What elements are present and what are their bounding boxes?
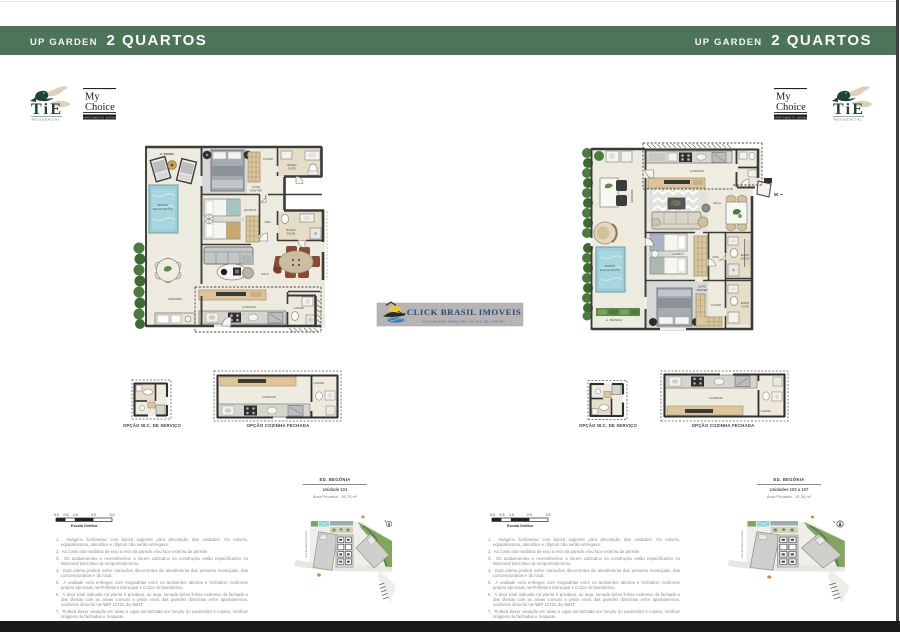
svg-text:PRAINHA (M² ÚTIL): PRAINHA (M² ÚTIL): [153, 208, 174, 211]
svg-text:SUA MELHOR IMOBILIÁRIA NO RIO: SUA MELHOR IMOBILIÁRIA NO RIO DE JANEIRO: [423, 320, 506, 324]
svg-text:PISCINA: PISCINA: [605, 264, 616, 268]
svg-text:MASTER: MASTER: [697, 288, 708, 292]
svg-text:SALA: SALA: [261, 272, 269, 276]
svg-text:CLOSET: CLOSET: [711, 303, 722, 307]
svg-text:A. PEDRA: A. PEDRA: [160, 152, 175, 156]
svg-text:LAVAND.: LAVAND.: [761, 409, 772, 413]
svg-text:CLOSET: CLOSET: [263, 157, 274, 161]
svg-text:COZINHA: COZINHA: [262, 395, 276, 399]
svg-text:BANHO: BANHO: [286, 228, 295, 232]
svg-text:BANHO: BANHO: [287, 163, 296, 167]
svg-text:CIRC.: CIRC.: [264, 220, 271, 224]
svg-text:MASTER: MASTER: [250, 189, 262, 193]
svg-text:SUITE: SUITE: [741, 305, 748, 308]
svg-text:CLICK BRASIL IMOVEIS: CLICK BRASIL IMOVEIS: [407, 307, 522, 317]
svg-text:VARANDA: VARANDA: [630, 189, 634, 202]
svg-text:PRAINHA (M² ÚTIL): PRAINHA (M² ÚTIL): [600, 269, 621, 272]
svg-text:SALA: SALA: [713, 201, 721, 205]
svg-text:A. TÉCNICA: A. TÉCNICA: [606, 317, 622, 322]
svg-text:LAVAND.: LAVAND.: [294, 306, 305, 310]
svg-text:SUITE: SUITE: [698, 285, 706, 289]
svg-text:SOCIAL: SOCIAL: [741, 257, 750, 260]
svg-text:COZINHA: COZINHA: [242, 305, 256, 309]
svg-text:QUARTO: QUARTO: [672, 252, 685, 256]
svg-text:COZINHA: COZINHA: [690, 169, 704, 173]
svg-text:VARANDA: VARANDA: [168, 297, 182, 301]
svg-text:COZINHA: COZINHA: [709, 396, 723, 400]
svg-text:SOCIAL: SOCIAL: [286, 232, 296, 236]
svg-text:CIRC.: CIRC.: [712, 255, 719, 259]
svg-text:QUARTO: QUARTO: [244, 208, 257, 212]
svg-text:SUITE: SUITE: [288, 167, 296, 171]
svg-text:PISCINA: PISCINA: [158, 203, 169, 207]
svg-text:LAVAND.: LAVAND.: [314, 381, 325, 385]
svg-text:N: N: [833, 520, 835, 524]
